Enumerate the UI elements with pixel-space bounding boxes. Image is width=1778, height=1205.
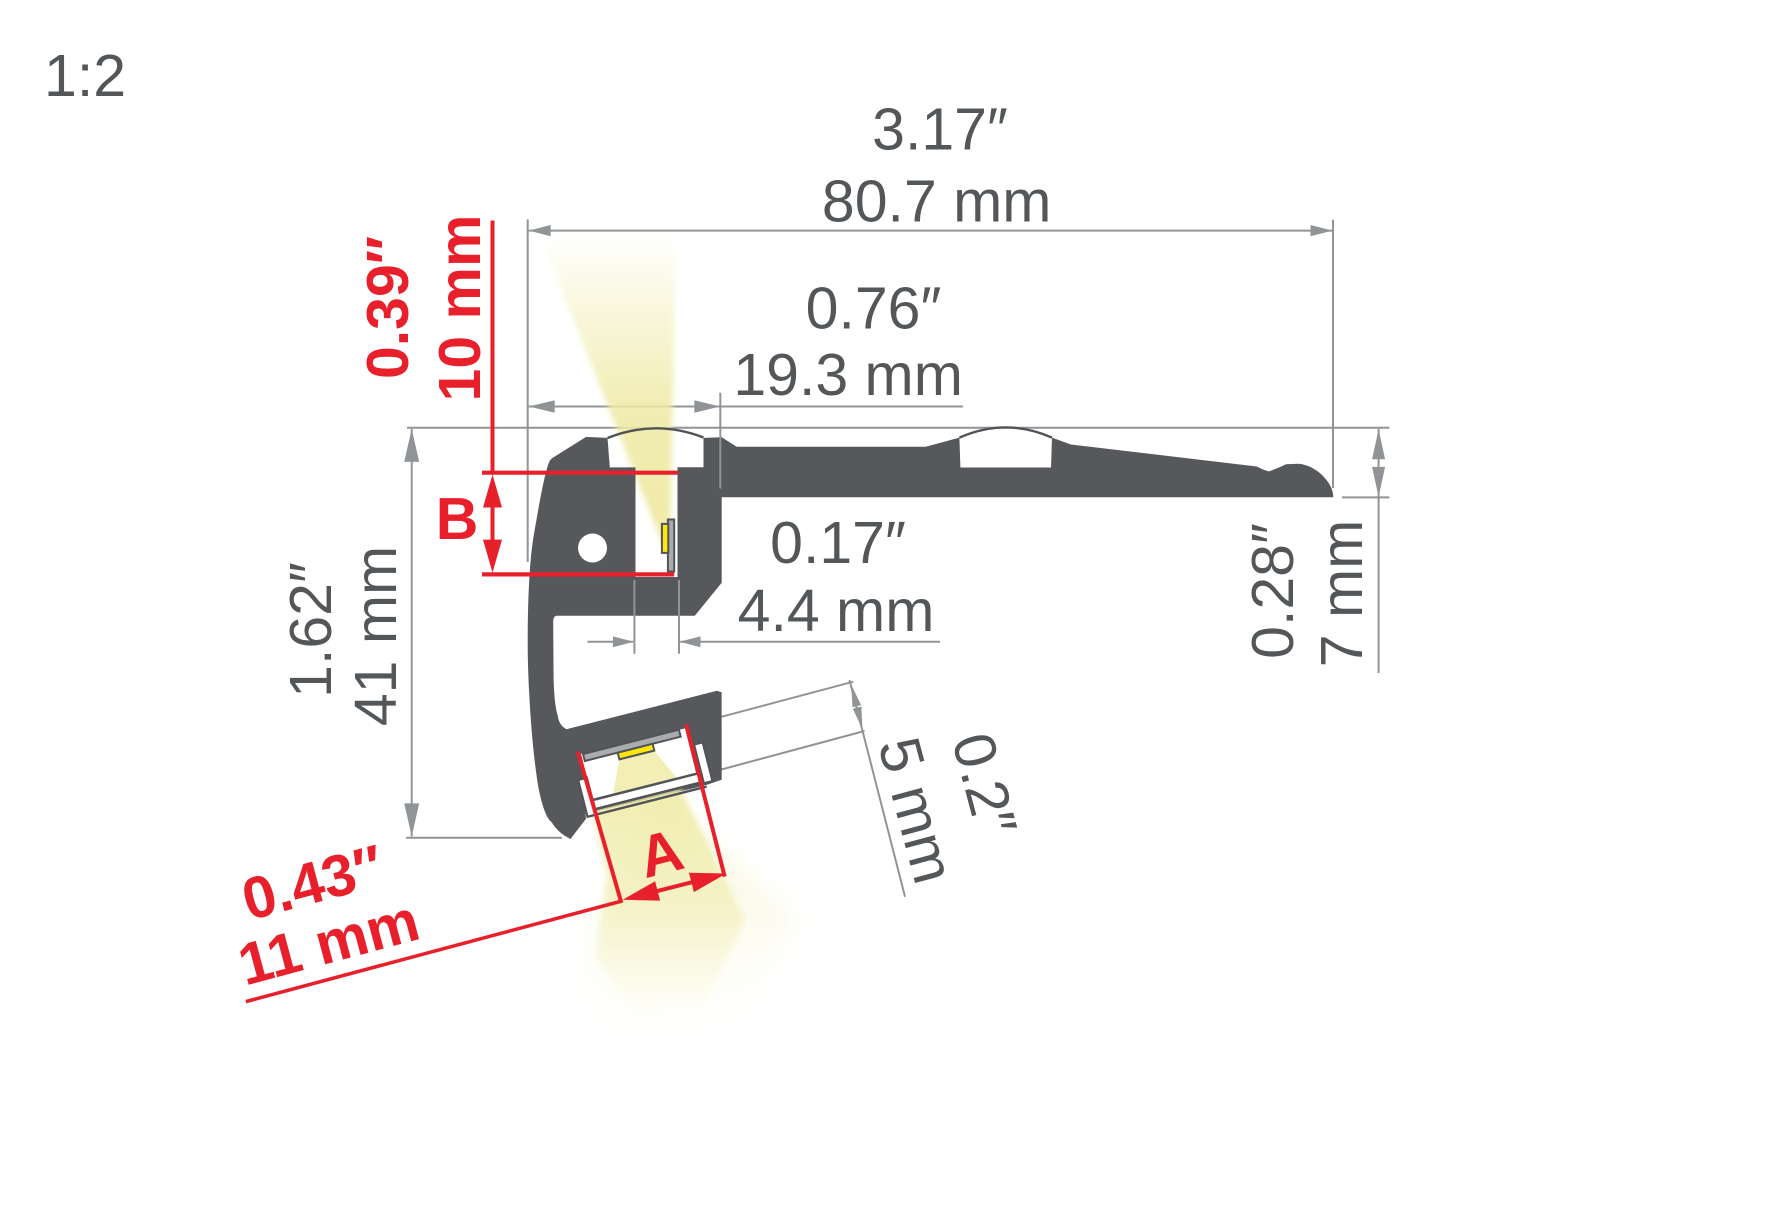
svg-text:1:2: 1:2	[44, 43, 126, 109]
svg-text:3.17″: 3.17″	[872, 96, 1008, 162]
svg-text:0.39″: 0.39″	[355, 236, 421, 379]
svg-text:41 mm: 41 mm	[343, 546, 409, 726]
svg-text:0.28″: 0.28″	[1240, 523, 1306, 659]
svg-text:10 mm: 10 mm	[427, 215, 493, 402]
svg-text:1.62″: 1.62″	[278, 562, 344, 698]
svg-text:4.4 mm: 4.4 mm	[738, 578, 935, 644]
svg-text:B: B	[436, 486, 479, 552]
svg-text:7 mm: 7 mm	[1309, 520, 1375, 668]
svg-text:80.7 mm: 80.7 mm	[822, 169, 1052, 235]
svg-text:19.3 mm: 19.3 mm	[733, 342, 963, 408]
svg-text:0.76″: 0.76″	[806, 275, 942, 341]
svg-text:0.17″: 0.17″	[770, 510, 906, 576]
